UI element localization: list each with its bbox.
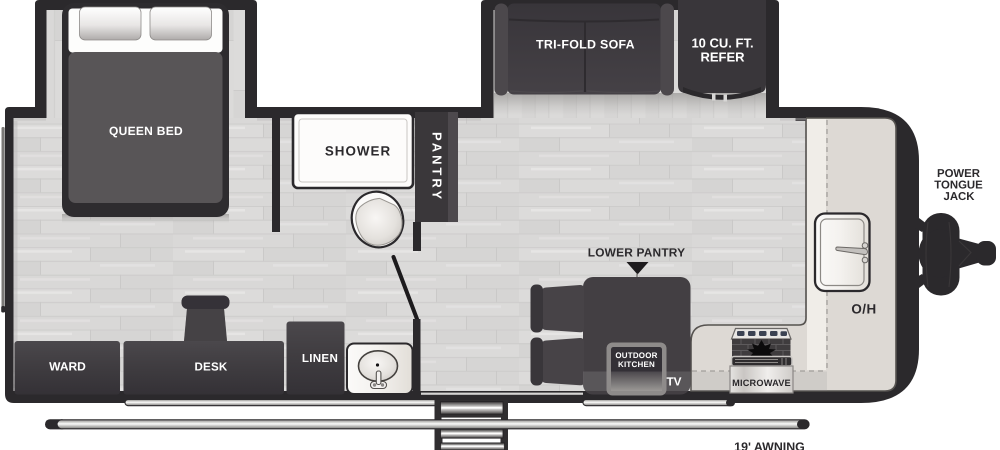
svg-text:OUTDOOR: OUTDOOR [615, 351, 657, 360]
svg-text:MICROWAVE: MICROWAVE [732, 378, 791, 388]
svg-text:TV: TV [666, 375, 681, 389]
svg-text:19' AWNING: 19' AWNING [734, 440, 805, 450]
svg-text:JACK: JACK [943, 191, 975, 203]
svg-text:DESK: DESK [194, 361, 227, 374]
svg-text:POWER: POWER [937, 168, 980, 180]
svg-text:TRI-FOLD SOFA: TRI-FOLD SOFA [536, 38, 635, 52]
svg-text:QUEEN BED: QUEEN BED [109, 124, 183, 138]
svg-text:O/H: O/H [851, 302, 876, 317]
svg-text:LOWER PANTRY: LOWER PANTRY [588, 246, 686, 260]
svg-text:LINEN: LINEN [302, 352, 338, 365]
svg-text:WARD: WARD [49, 360, 86, 374]
svg-text:REFER: REFER [700, 50, 745, 65]
svg-text:SHOWER: SHOWER [325, 144, 391, 159]
svg-text:10 CU. FT.: 10 CU. FT. [691, 36, 753, 51]
svg-text:TONGUE: TONGUE [934, 180, 983, 192]
svg-text:KITCHEN: KITCHEN [618, 360, 655, 369]
svg-text:PANTRY: PANTRY [430, 132, 445, 202]
